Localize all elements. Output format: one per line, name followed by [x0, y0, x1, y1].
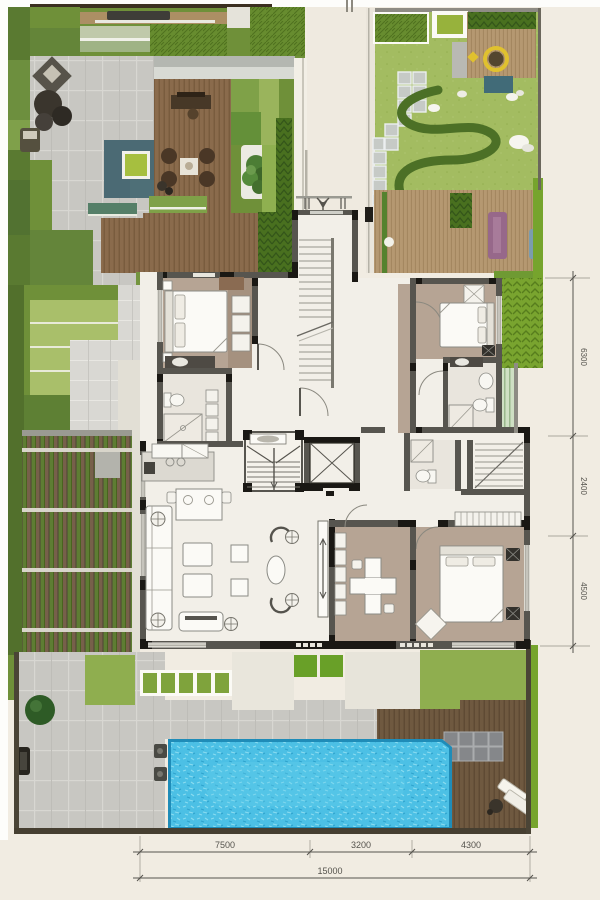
svg-text:4300: 4300 [461, 840, 481, 850]
svg-text:2400: 2400 [579, 477, 588, 495]
svg-text:4500: 4500 [579, 582, 588, 600]
svg-text:7500: 7500 [215, 840, 235, 850]
svg-text:3200: 3200 [351, 840, 371, 850]
svg-text:6300: 6300 [579, 348, 588, 366]
svg-text:15000: 15000 [317, 866, 342, 876]
